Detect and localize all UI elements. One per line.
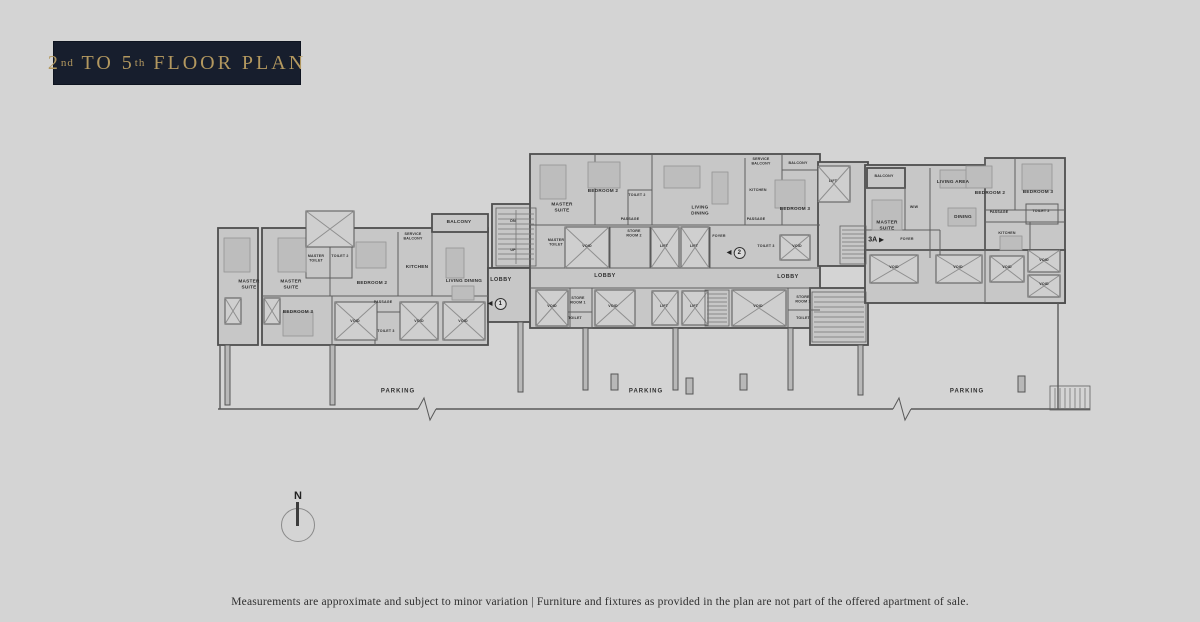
column	[858, 345, 863, 395]
column	[225, 345, 230, 405]
stair-flight	[1050, 386, 1090, 410]
column	[1018, 376, 1025, 392]
compass-needle-icon	[296, 502, 299, 526]
column	[611, 374, 618, 390]
page: 2nd TO 5th FLOOR PLAN	[0, 0, 1200, 622]
column	[583, 328, 588, 390]
column	[740, 374, 747, 390]
disclaimer-text: Measurements are approximate and subject…	[0, 596, 1200, 608]
column	[686, 378, 693, 394]
floor-plan: MASTER SUITEMASTER SUITEMASTER TOILETTOI…	[0, 0, 1200, 622]
column	[788, 328, 793, 390]
column	[518, 322, 523, 392]
north-label: N	[280, 490, 316, 502]
column	[673, 328, 678, 390]
column	[330, 345, 335, 405]
north-compass: N	[280, 494, 316, 544]
floor-plan-drawing	[0, 0, 1200, 622]
